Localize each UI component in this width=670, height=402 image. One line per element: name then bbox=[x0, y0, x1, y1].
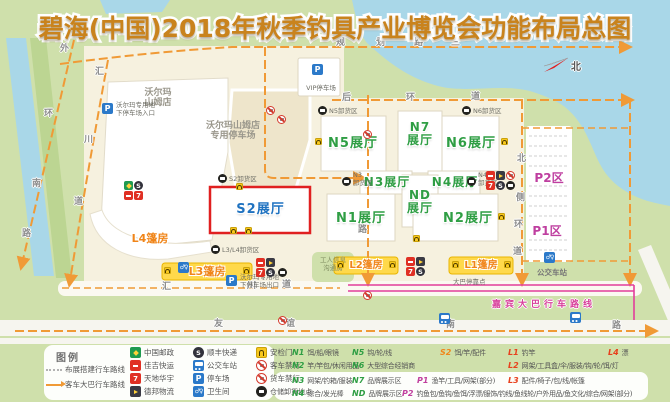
no-entry-icon bbox=[363, 291, 372, 300]
legend-route-setup: 布展搭建行车路线 bbox=[46, 364, 125, 375]
road-label-beice-1: 侧 bbox=[516, 194, 525, 203]
n5-unload-label: N5卸货区 bbox=[329, 108, 358, 116]
road-label-huichuan-v-1: 川 bbox=[84, 136, 93, 145]
legend-zone-p2: P2钓鱼包/鱼钩/鱼饵/浮漂/服饰/钓线/鱼线轮/户外用品/鱼文化/综合/网架(… bbox=[402, 389, 632, 399]
hall-n2: N2展厅 bbox=[432, 212, 504, 225]
jiaji-express-icon bbox=[256, 258, 265, 267]
no-truck-icon bbox=[256, 373, 267, 384]
road-label-youyi-1: 谊 bbox=[286, 320, 295, 329]
legend-bus-station: 公交车站 bbox=[193, 360, 237, 371]
security-gate-icon bbox=[245, 227, 252, 234]
security-gate-icon bbox=[501, 138, 508, 145]
no-entry-icon bbox=[278, 316, 287, 325]
unload-icon bbox=[342, 177, 351, 186]
sf-express-icon bbox=[266, 268, 275, 277]
security-gate-icon bbox=[389, 261, 396, 268]
legend-zone-l3: L3配件/椅子/包/线/帐篷 bbox=[508, 376, 585, 386]
parking-icon bbox=[226, 275, 237, 286]
map-title: 碧海(中国)2018年秋季钓具产业博览会功能布局总图 bbox=[0, 9, 670, 45]
legend-zone-n1: N1饵/船/眼镜 bbox=[292, 348, 339, 358]
legend-route-bus: 客车大巴行车路线 bbox=[46, 379, 125, 390]
no-truck-icon bbox=[506, 171, 515, 180]
security-gate-icon bbox=[498, 213, 505, 220]
expo-layout-map: 碧海(中国)2018年秋季钓具产业博览会功能布局总图 规 划 路 三 外 环 南… bbox=[0, 0, 670, 402]
legend-china-post: 中国邮政 bbox=[130, 347, 174, 358]
debang-logistics-icon bbox=[266, 258, 275, 267]
road-label-youyi-0: 友 bbox=[214, 320, 223, 329]
hall-n6: N6展厅 bbox=[436, 137, 506, 150]
map-base-layer bbox=[0, 0, 670, 402]
legend-zone-n4: N4综合/发光棒 bbox=[292, 389, 343, 399]
legend-zone-n5: N5钩/轮/线 bbox=[352, 348, 392, 358]
legend-toilet: 卫生间 bbox=[193, 386, 230, 397]
no-bus-icon bbox=[266, 106, 275, 115]
n3-unload-label: N3卸货区 bbox=[353, 172, 373, 187]
unload-icon bbox=[318, 106, 327, 115]
legend-title: 图例 bbox=[56, 349, 80, 364]
guest-bus-route-label: 嘉宾大巴行车路线 bbox=[492, 297, 596, 310]
logistics-cluster-n4 bbox=[486, 171, 516, 190]
bus-station-label: 公交车站 bbox=[537, 269, 567, 277]
sf-express-icon bbox=[193, 347, 204, 358]
legend-zone-nd: ND品牌展示区 bbox=[352, 389, 402, 399]
road-label-beice-0: 北 bbox=[517, 155, 526, 164]
no-bus-icon bbox=[256, 360, 267, 371]
n6-unload-label: N6卸货区 bbox=[473, 108, 502, 116]
debang-logistics-icon bbox=[130, 386, 141, 397]
security-gate-icon bbox=[452, 261, 459, 268]
tiandi-huayu-icon bbox=[134, 191, 143, 200]
youyi-road-median bbox=[0, 336, 670, 338]
sf-express-icon bbox=[496, 181, 505, 190]
road-label-houhuan-1: 环 bbox=[406, 94, 415, 103]
hall-s2: S2展厅 bbox=[218, 203, 303, 216]
road-label-waihuan-1: 环 bbox=[44, 110, 53, 119]
road-label-houhuan-0: 后 bbox=[342, 94, 351, 103]
jiaji-express-icon bbox=[130, 360, 141, 371]
road-label-huichuan-v-0: 汇 bbox=[95, 68, 104, 77]
walmart-entrance-label: 沃尔玛专用地下停车场入口 bbox=[116, 102, 155, 117]
security-gate-icon bbox=[315, 138, 322, 145]
tiandi-huayu-icon bbox=[256, 268, 265, 277]
road-label-huichuan-h-2: 道 bbox=[282, 281, 291, 290]
legend-zone-s2: S2饵/竿/配件 bbox=[440, 348, 486, 358]
security-gate-icon bbox=[256, 347, 267, 358]
bus-station-icon bbox=[570, 312, 581, 323]
toilet-icon bbox=[544, 252, 555, 263]
unload-icon bbox=[256, 386, 267, 397]
hall-n5: N5展厅 bbox=[318, 137, 388, 150]
legend-zone-l2: L2网架/工具盒/伞/服装/钩/轮/饵/灯 bbox=[508, 361, 618, 371]
unload-icon bbox=[506, 181, 515, 190]
vip-parking-icon bbox=[312, 64, 323, 75]
legend-zone-n3: N3网架/钓箱/服装 bbox=[292, 376, 352, 386]
security-gate-icon bbox=[164, 267, 171, 274]
security-gate-icon bbox=[413, 235, 420, 242]
walmart-parking-label: 沃尔玛山姆店专用停车场 bbox=[193, 121, 273, 141]
legend-route-label: 布展搭建行车路线 bbox=[65, 364, 125, 375]
road-label-huichuan-h-0: 汇 bbox=[162, 283, 171, 292]
road-label-waihuan-0: 外 bbox=[60, 45, 69, 54]
parking-zone-p1: P1区 bbox=[527, 222, 567, 239]
parking-icon bbox=[102, 103, 113, 114]
legend-zone-l1: L1钓竿 bbox=[508, 348, 535, 358]
china-post-icon bbox=[124, 181, 133, 190]
worker-room-label: 工人信息沟通房 bbox=[314, 257, 352, 272]
legend-jiaji: 佳吉快运 bbox=[130, 360, 174, 371]
parking-zone-p2: P2区 bbox=[529, 169, 569, 186]
road-label-beice-2: 环 bbox=[514, 221, 523, 230]
bus-stop-icon bbox=[439, 313, 450, 324]
road-label-huichuan-v-2: 道 bbox=[74, 198, 83, 207]
logistics-cluster-walmart bbox=[124, 181, 144, 200]
unload-icon bbox=[218, 174, 227, 183]
parking-icon bbox=[193, 373, 204, 384]
debang-logistics-icon bbox=[416, 257, 425, 266]
jiaji-express-icon bbox=[124, 191, 133, 200]
toilet-icon bbox=[193, 386, 204, 397]
legend-zone-l4: L4漂 bbox=[608, 348, 628, 358]
road-label-waihuan-2: 南 bbox=[32, 180, 41, 189]
jiaji-express-icon bbox=[406, 257, 415, 266]
logistics-cluster-l1l2 bbox=[406, 257, 426, 276]
tent-l3: L3篷房 bbox=[162, 266, 252, 277]
legend-parking: 停车场 bbox=[193, 373, 230, 384]
hall-n1: N1展厅 bbox=[326, 212, 396, 225]
logistics-cluster-l3 bbox=[256, 258, 276, 277]
setup-route-swatch bbox=[46, 369, 62, 371]
road-label-houhuan-2: 道 bbox=[471, 93, 480, 102]
debang-logistics-icon bbox=[496, 171, 505, 180]
unload-icon bbox=[467, 177, 476, 186]
security-gate-icon bbox=[230, 227, 237, 234]
s2-unload-label: S2卸货区 bbox=[229, 176, 257, 184]
legend-sf: 顺丰快递 bbox=[193, 347, 237, 358]
compass-north-label: 北 bbox=[571, 58, 581, 73]
security-gate-icon bbox=[504, 261, 511, 268]
no-entry-icon bbox=[363, 130, 372, 139]
tiandi-huayu-icon bbox=[130, 373, 141, 384]
tiandi-huayu-icon bbox=[486, 181, 495, 190]
legend-zone-p1: P1渔竿/工具/网架(部分) bbox=[417, 376, 495, 386]
security-gate-icon bbox=[236, 183, 243, 190]
sf-express-icon bbox=[416, 267, 425, 276]
sf-express-icon bbox=[134, 181, 143, 190]
legend-security-gate: 安检门 bbox=[256, 347, 293, 358]
legend-tiandi: 天地华宇 bbox=[130, 373, 174, 384]
legend-route-label: 客车大巴行车路线 bbox=[65, 379, 125, 390]
security-gate-icon bbox=[337, 261, 344, 268]
china-post-icon bbox=[130, 347, 141, 358]
security-gate-icon bbox=[243, 267, 250, 274]
legend-zone-n2: N2竿/竿包/休闲用品 bbox=[292, 361, 359, 371]
l3l4-unload-label: L3/L4卸货区 bbox=[222, 247, 259, 255]
toilet-icon bbox=[178, 262, 189, 273]
road-label-waihuan-3: 路 bbox=[22, 230, 31, 239]
unload-icon bbox=[211, 245, 220, 254]
jiaji-express-icon bbox=[486, 171, 495, 180]
tent-l4: L4篷房 bbox=[118, 233, 182, 244]
bus-route-swatch bbox=[46, 384, 62, 386]
vip-parking-label: VIP停车场 bbox=[301, 85, 341, 93]
bus-station-icon bbox=[193, 360, 204, 371]
road-label-youyi-3: 路 bbox=[612, 322, 621, 331]
unload-icon bbox=[278, 268, 287, 277]
legend-debang: 德邦物流 bbox=[130, 386, 174, 397]
road-label-mid-0: 路 bbox=[358, 226, 367, 235]
tiandi-huayu-icon bbox=[406, 267, 415, 276]
road-label-beice-3: 道 bbox=[513, 248, 522, 257]
unload-icon bbox=[462, 106, 471, 115]
no-truck-icon bbox=[277, 115, 286, 124]
bus-stop-label: 大巴停靠点 bbox=[453, 279, 486, 287]
legend-zone-n6: N6大型综合经销商 bbox=[352, 361, 415, 371]
legend-zone-n7: N7品牌展示区 bbox=[352, 376, 401, 386]
